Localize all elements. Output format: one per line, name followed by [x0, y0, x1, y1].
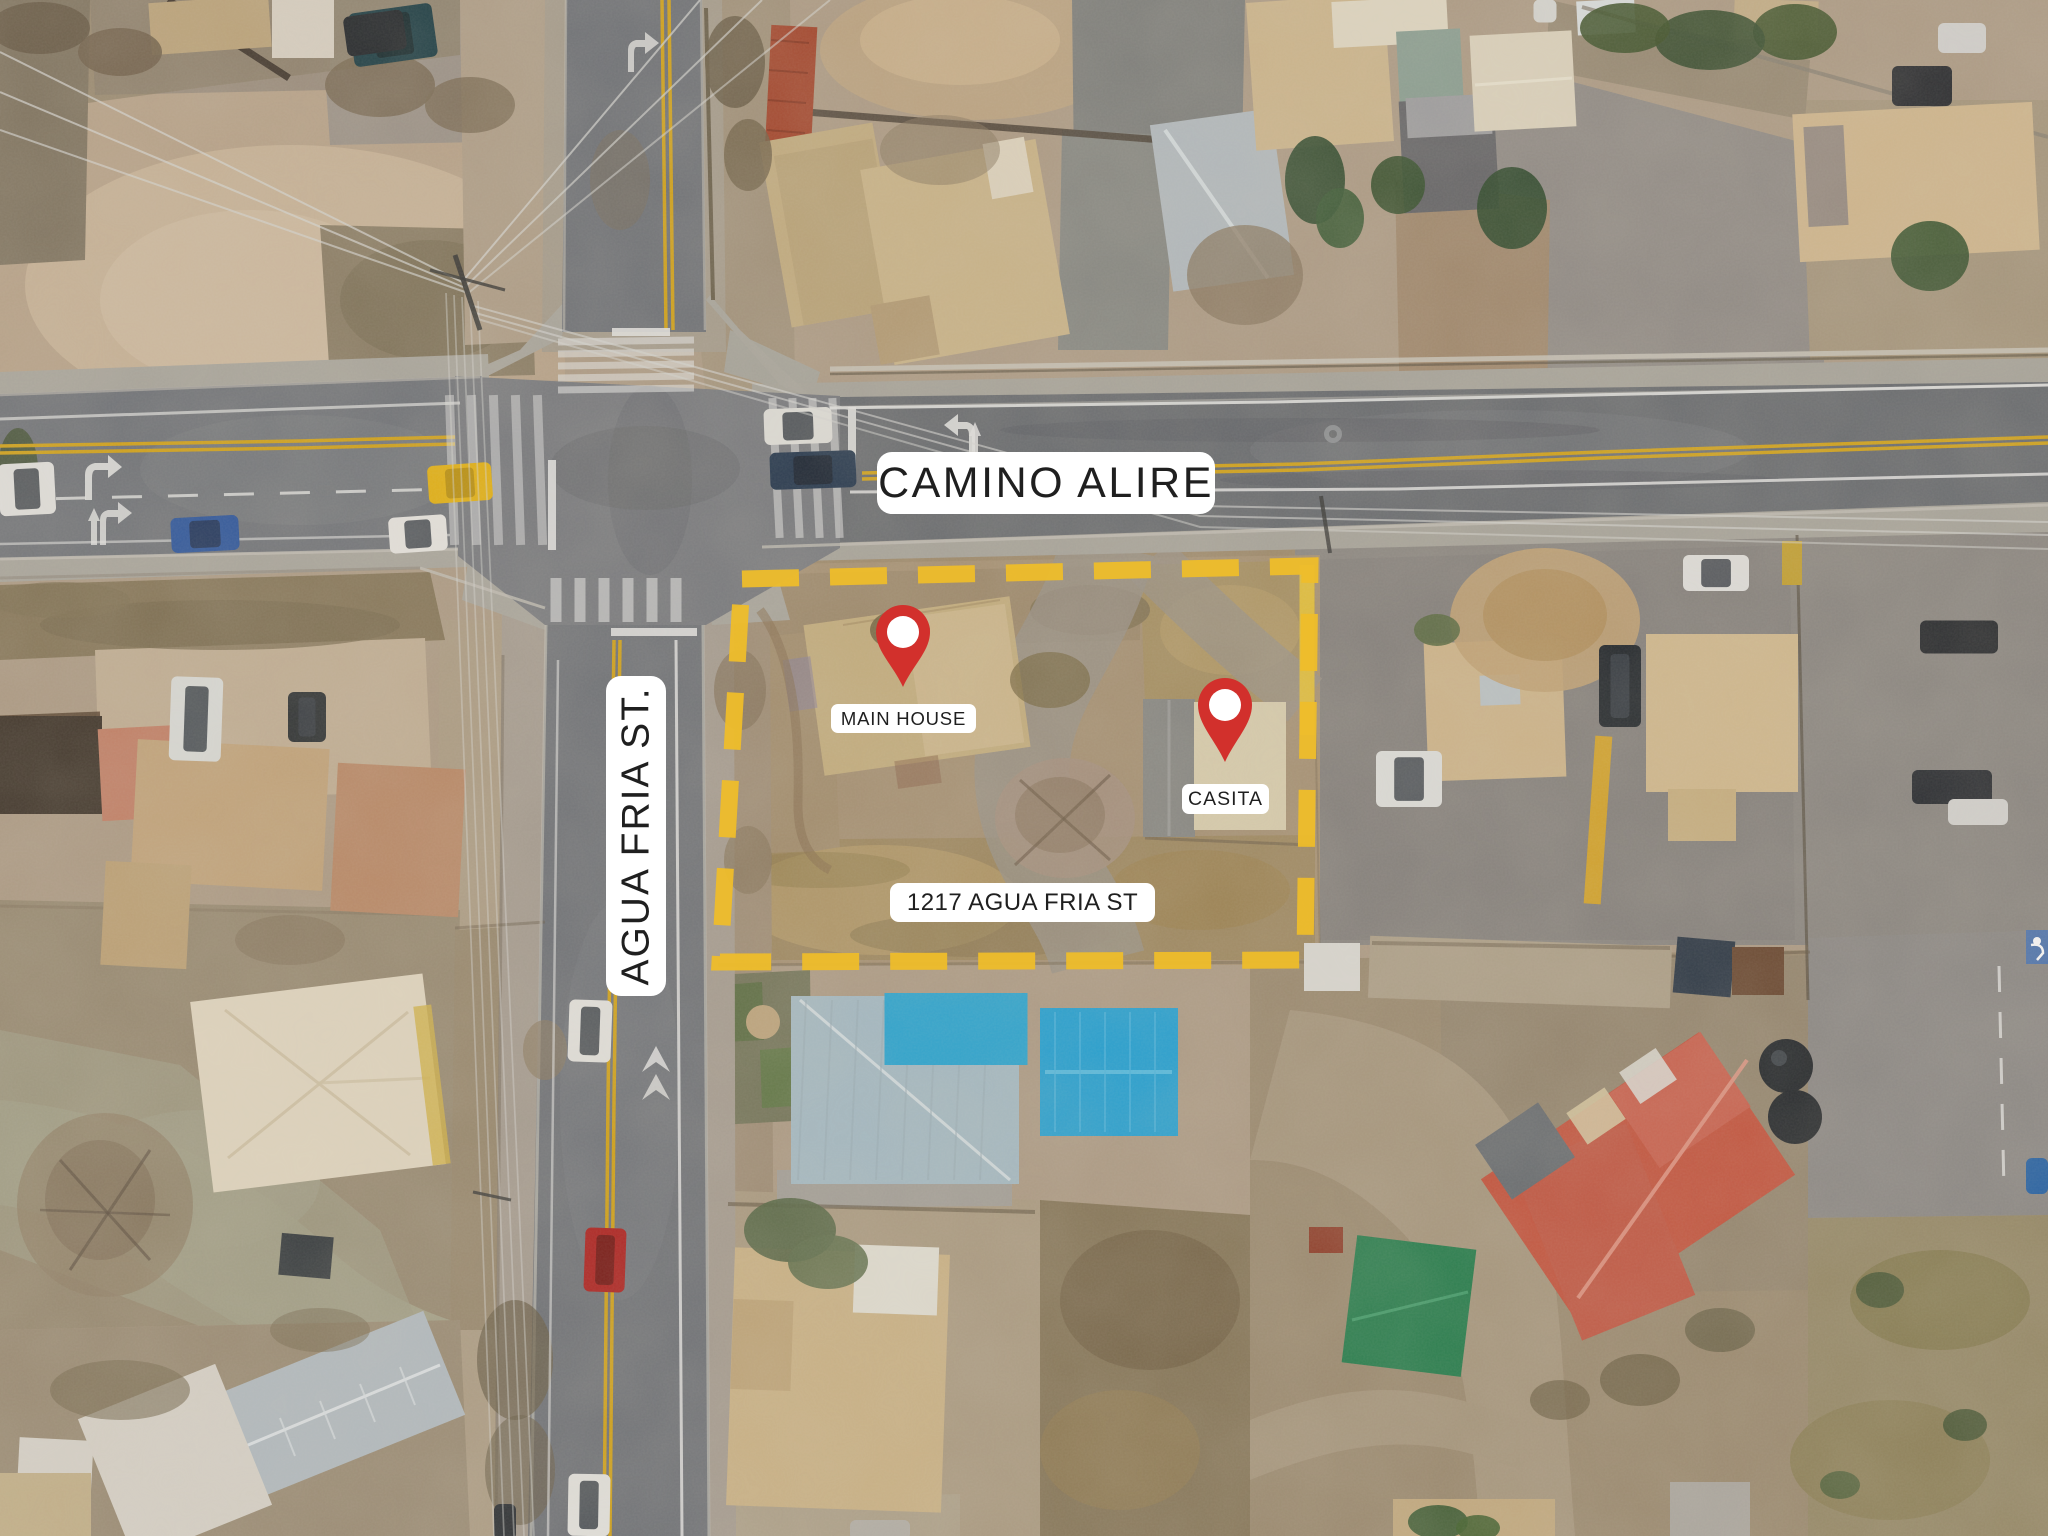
- svg-text:AGUA FRIA ST.: AGUA FRIA ST.: [615, 686, 658, 985]
- svg-text:1217 AGUA FRIA ST: 1217 AGUA FRIA ST: [907, 889, 1138, 916]
- svg-text:CAMINO ALIRE: CAMINO ALIRE: [878, 459, 1214, 507]
- svg-text:MAIN HOUSE: MAIN HOUSE: [841, 708, 966, 729]
- svg-text:CASITA: CASITA: [1188, 788, 1263, 810]
